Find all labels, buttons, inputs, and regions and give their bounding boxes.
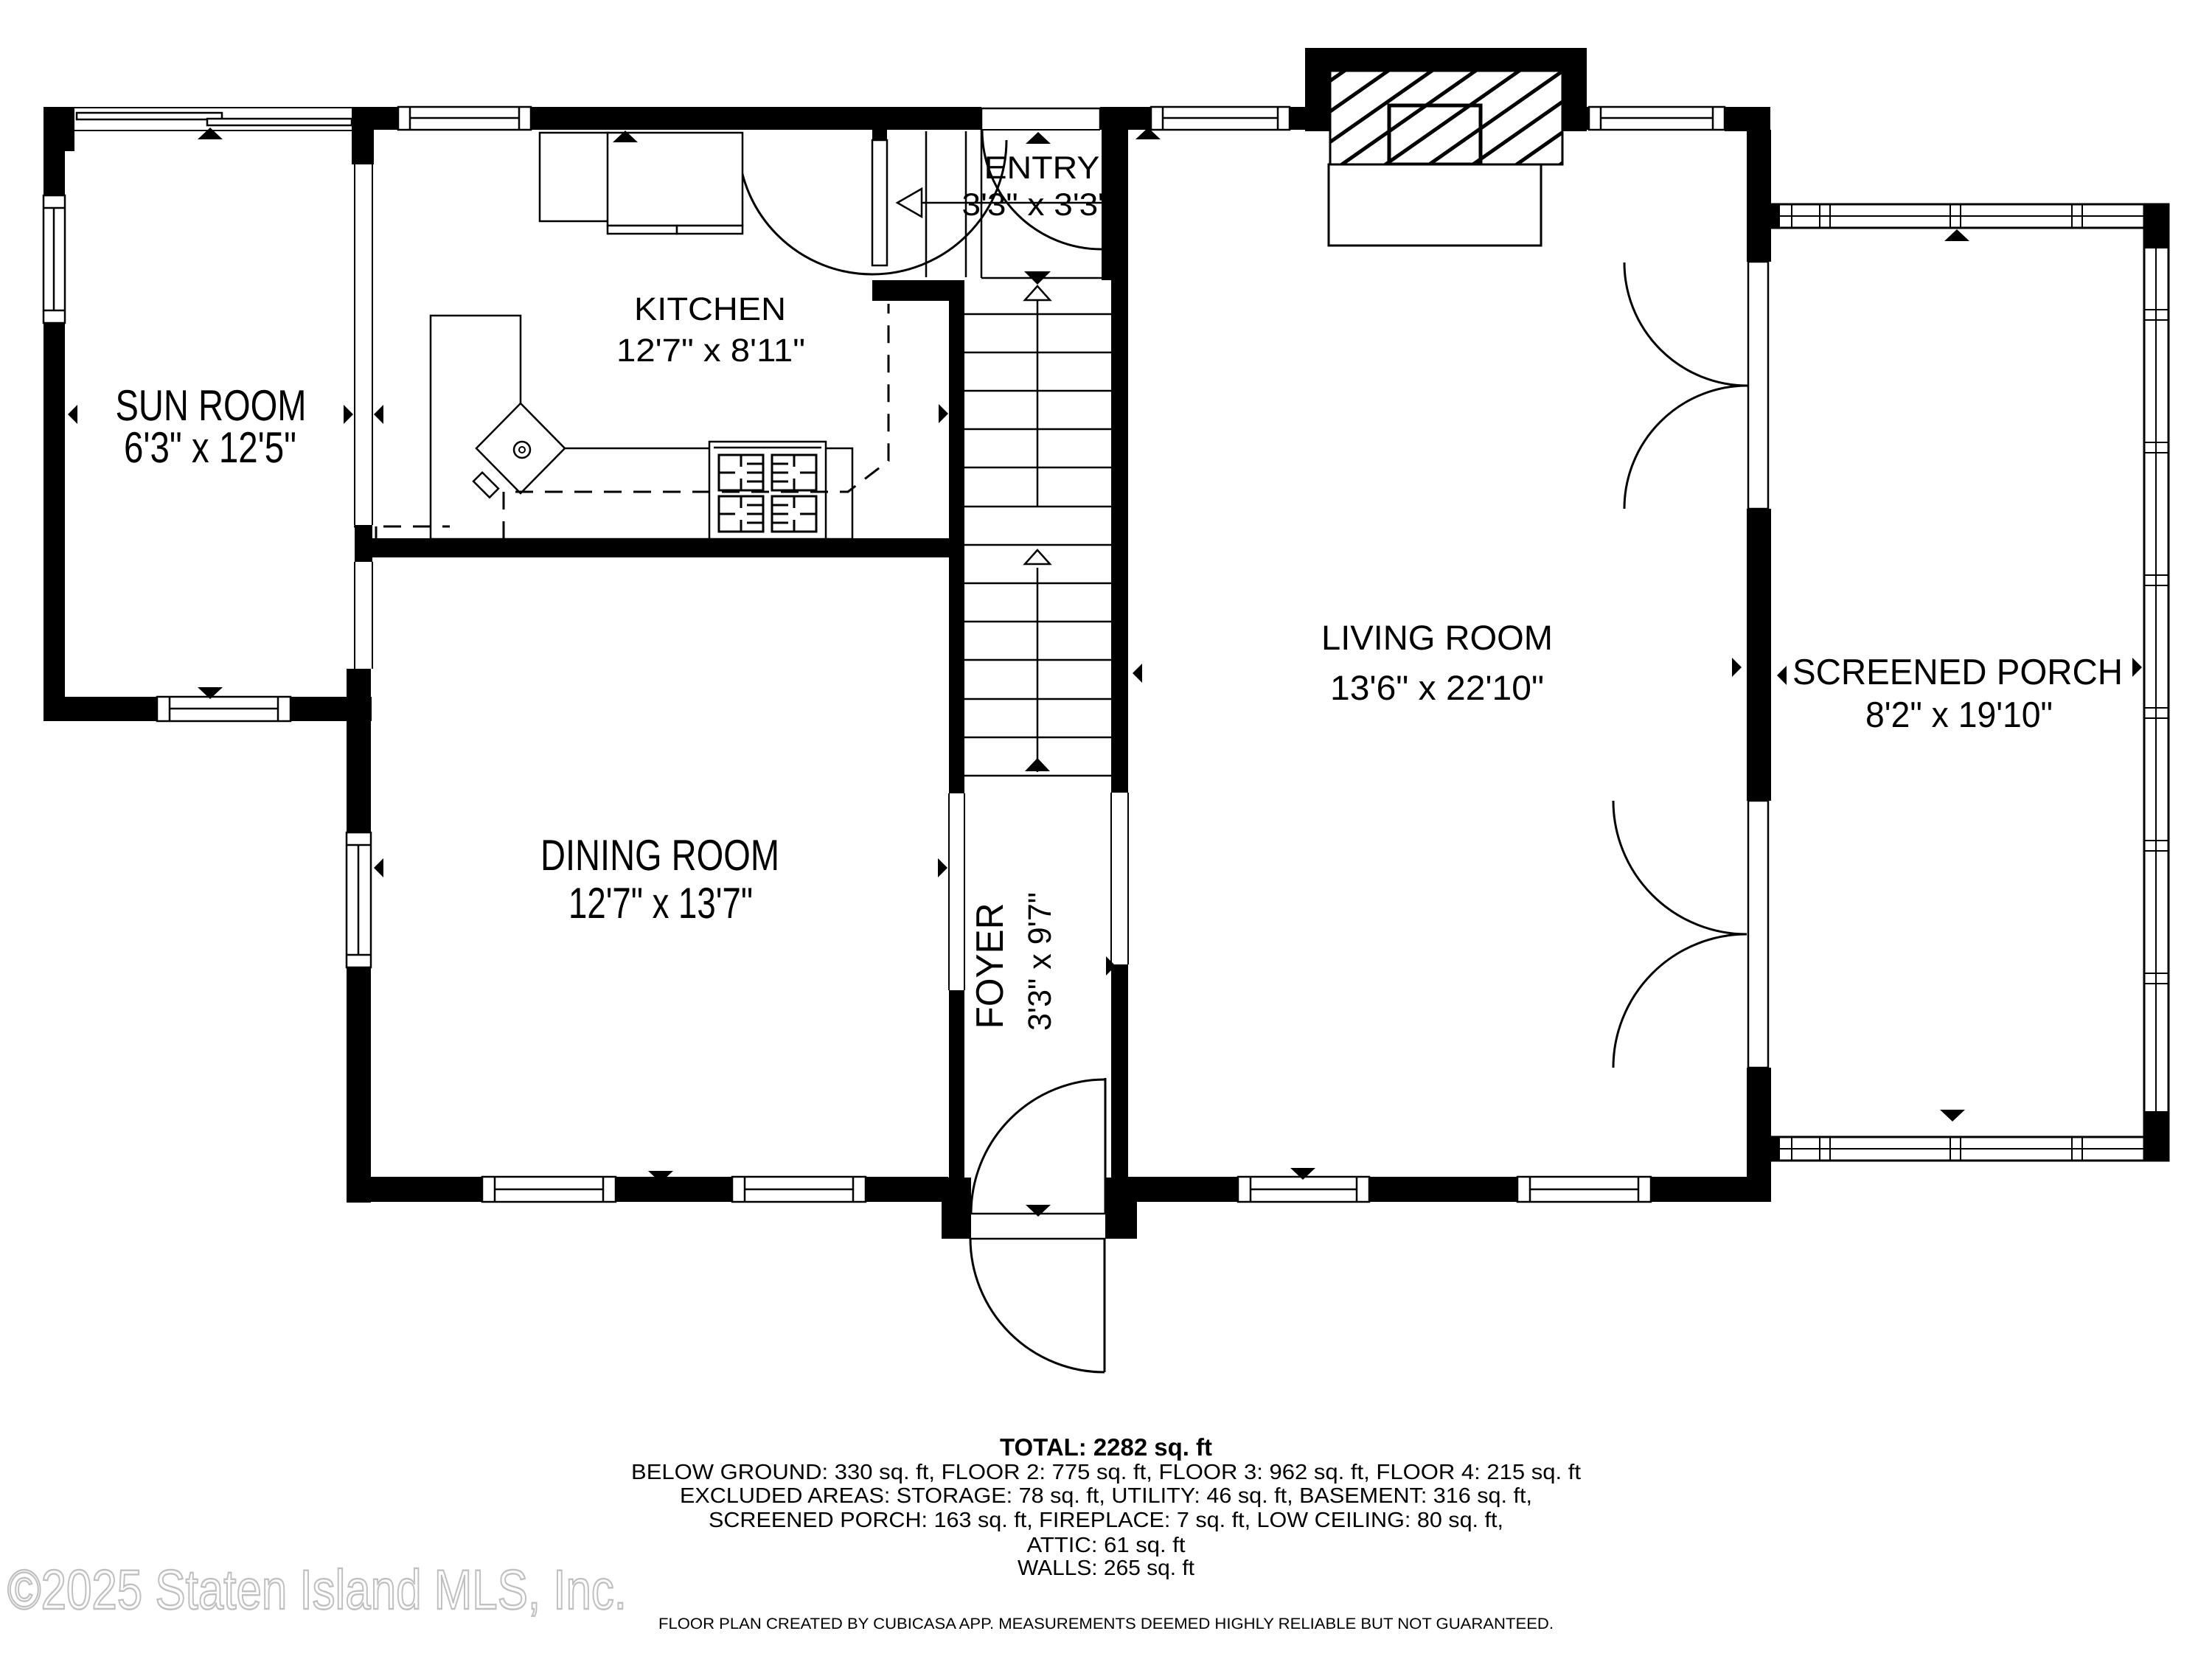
svg-text:EXCLUDED AREAS: STORAGE: 78 sq: EXCLUDED AREAS: STORAGE: 78 sq. ft, UTIL…: [680, 1484, 1532, 1508]
svg-text:ENTRY: ENTRY: [984, 150, 1100, 186]
svg-text:LIVING ROOM: LIVING ROOM: [1321, 618, 1553, 657]
svg-text:3'3" x 9'7": 3'3" x 9'7": [1022, 892, 1058, 1031]
svg-text:8'2" x 19'10": 8'2" x 19'10": [1865, 695, 2053, 735]
svg-text:KITCHEN: KITCHEN: [634, 291, 786, 327]
svg-text:SCREENED PORCH: 163 sq. ft, FI: SCREENED PORCH: 163 sq. ft, FIREPLACE: 7…: [709, 1509, 1503, 1532]
svg-text:BELOW GROUND: 330 sq. ft, FLOO: BELOW GROUND: 330 sq. ft, FLOOR 2: 775 s…: [631, 1461, 1581, 1484]
svg-text:12'7" x 13'7": 12'7" x 13'7": [568, 879, 753, 928]
svg-text:FLOOR PLAN CREATED BY CUBICASA: FLOOR PLAN CREATED BY CUBICASA APP. MEAS…: [658, 1615, 1554, 1632]
svg-text:DINING ROOM: DINING ROOM: [540, 831, 779, 880]
svg-text:WALLS: 265 sq. ft: WALLS: 265 sq. ft: [1018, 1557, 1194, 1580]
svg-text:FOYER: FOYER: [969, 903, 1012, 1029]
svg-text:SCREENED PORCH: SCREENED PORCH: [1792, 653, 2123, 692]
svg-text:6'3" x 12'5": 6'3" x 12'5": [124, 423, 296, 472]
svg-text:3'3" x 3'3": 3'3" x 3'3": [962, 187, 1110, 223]
svg-text:TOTAL: 2282 sq. ft: TOTAL: 2282 sq. ft: [1000, 1433, 1212, 1461]
svg-text:©2025 Staten Island MLS, Inc.: ©2025 Staten Island MLS, Inc.: [7, 1559, 627, 1621]
svg-text:12'7" x 8'11": 12'7" x 8'11": [616, 333, 805, 369]
svg-text:13'6" x 22'10": 13'6" x 22'10": [1330, 668, 1544, 707]
svg-text:ATTIC: 61 sq. ft: ATTIC: 61 sq. ft: [1027, 1534, 1186, 1557]
